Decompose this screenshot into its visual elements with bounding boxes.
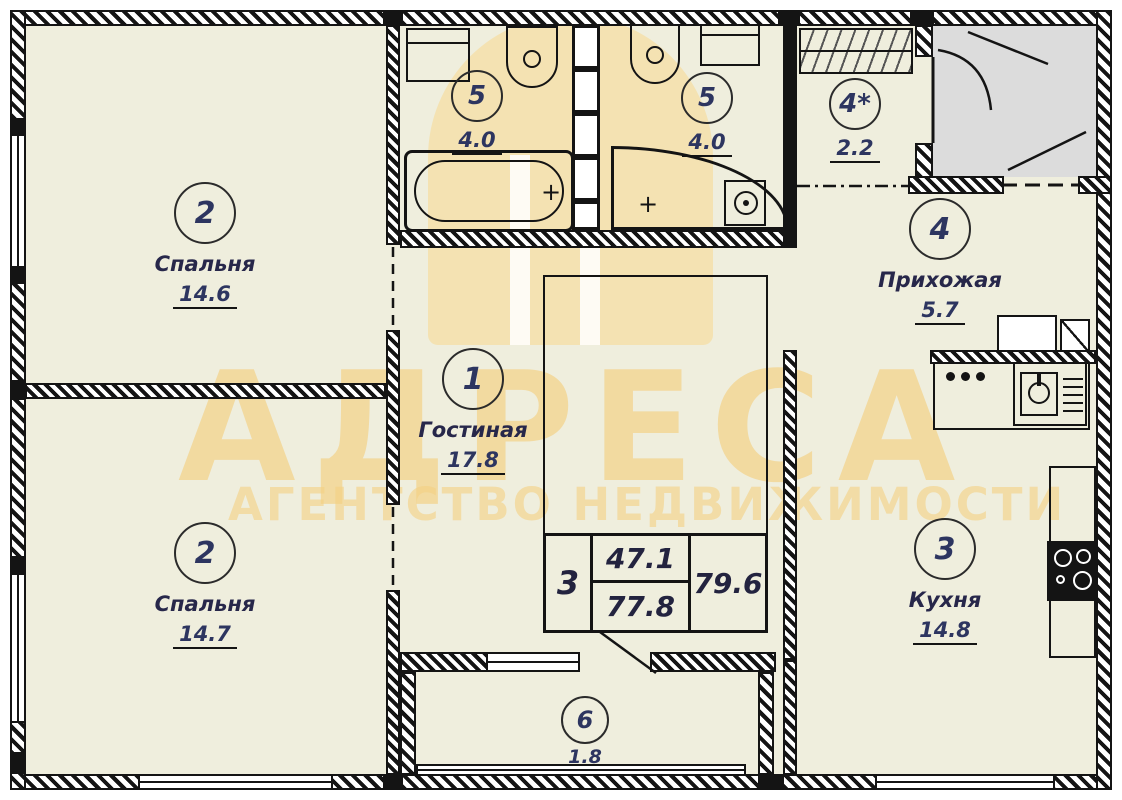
room-label-kitchen: 3 Кухня 14.8: [860, 518, 1030, 645]
room-name: Гостиная: [418, 418, 527, 442]
ventilation-shaft: [572, 25, 600, 230]
stamp-total-with-summer: 79.6: [691, 536, 765, 630]
entrance-lobby-area: [933, 25, 1096, 177]
room-area: 14.8: [913, 618, 977, 645]
room-name: Спальня: [155, 252, 256, 276]
room-label-closet: 4* 2.2: [770, 78, 940, 163]
room-number-circle: 5: [681, 72, 733, 124]
wall: [758, 672, 774, 775]
window: [10, 133, 26, 268]
room-label-bedroom-bottom: 2 Спальня 14.7: [120, 522, 290, 649]
stove-knobs: [944, 368, 990, 384]
window: [138, 774, 333, 790]
room-label-balcony: 6 1.8: [500, 696, 670, 771]
washing-machine: [700, 22, 760, 66]
wall-bedroom-divider: [25, 383, 386, 399]
stamp-total-area: 77.8: [593, 583, 688, 630]
room-number-circle: 2: [174, 182, 236, 244]
cooktop: [1047, 541, 1097, 601]
room-name: Спальня: [155, 592, 256, 616]
room-area: 14.7: [173, 622, 237, 649]
apartment-stamp-table: 3 47.1 77.8 79.6: [543, 533, 768, 633]
room-label-bathroom-right: 5 4.0: [622, 72, 792, 157]
stamp-rooms-count: 3: [546, 536, 593, 630]
stamp-outline: [543, 275, 768, 535]
window: [10, 573, 26, 723]
wall: [650, 652, 776, 672]
tub-faucet: +: [541, 180, 561, 204]
room-area: 2.2: [830, 136, 879, 163]
room-label-living: 1 Гостиная 17.8: [388, 348, 558, 475]
wall: [783, 660, 797, 775]
stamp-living-area: 47.1: [593, 536, 688, 583]
room-label-bedroom-top: 2 Спальня 14.6: [120, 182, 290, 309]
room-area: 1.8: [562, 746, 608, 771]
wall: [10, 10, 1112, 26]
room-number-circle: 1: [442, 348, 504, 410]
wall: [400, 672, 416, 775]
wall-tick: [10, 118, 26, 136]
wall-kitchen-north: [930, 350, 1096, 364]
wall-tick: [10, 380, 26, 400]
wall-tick: [10, 752, 26, 774]
wall: [1078, 176, 1112, 194]
room-area: 14.6: [173, 282, 237, 309]
room-area: 4.0: [452, 128, 501, 155]
wardrobe: [799, 28, 913, 74]
wall-entrance: [915, 25, 933, 57]
cabinet: [1060, 319, 1090, 353]
window: [875, 774, 1055, 790]
wall-tick: [910, 10, 934, 26]
balcony-window: [486, 652, 580, 672]
wall-tick: [10, 556, 26, 574]
room-number-circle: 4*: [829, 78, 881, 130]
wall-tick: [10, 266, 26, 284]
room-number-circle: 5: [451, 70, 503, 122]
washing-machine-small: [724, 180, 766, 226]
room-number-circle: 6: [561, 696, 609, 744]
kitchen-sink: [1013, 362, 1087, 426]
room-number-circle: 3: [914, 518, 976, 580]
floor-plan: АДРЕСА АГЕНТСТВО НЕДВИЖИМОСТИ: [0, 0, 1122, 800]
room-number-circle: 2: [174, 522, 236, 584]
wall-tick: [383, 774, 403, 790]
wall: [1096, 10, 1112, 790]
wall-bathroom-south: [400, 230, 785, 248]
room-name: Прихожая: [878, 268, 1002, 292]
room-number-circle: 4: [909, 198, 971, 260]
wall-tick: [758, 774, 784, 790]
room-label-bathroom-left: 5 4.0: [392, 70, 562, 155]
room-area: 5.7: [915, 298, 964, 325]
room-label-hallway: 4 Прихожая 5.7: [855, 198, 1025, 325]
wall-tick: [778, 10, 800, 26]
room-name: Кухня: [909, 588, 981, 612]
room-area: 4.0: [682, 130, 731, 157]
room-area: 17.8: [441, 448, 505, 475]
wall: [783, 350, 797, 660]
wall: [386, 590, 400, 775]
shower-faucet: +: [638, 192, 658, 216]
wall: [400, 652, 488, 672]
wall: [908, 176, 1004, 194]
wall-tick: [383, 10, 403, 26]
